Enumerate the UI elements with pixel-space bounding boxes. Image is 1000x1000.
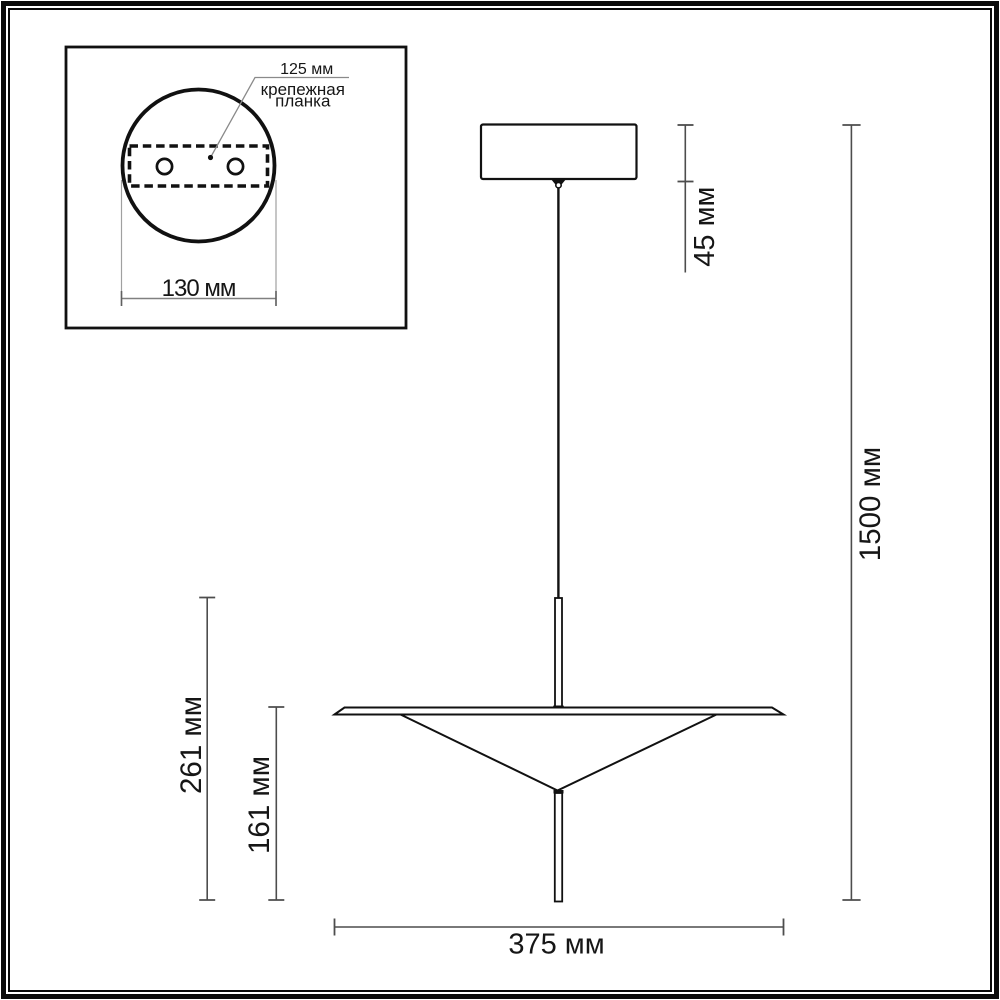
svg-text:130 мм: 130 мм [162, 275, 236, 302]
svg-text:161 мм: 161 мм [243, 756, 276, 854]
svg-text:45 мм: 45 мм [689, 186, 721, 266]
svg-text:1500 мм: 1500 мм [854, 447, 887, 561]
svg-text:375 мм: 375 мм [508, 929, 604, 961]
svg-text:планка: планка [275, 92, 331, 111]
svg-text:125 мм: 125 мм [280, 61, 333, 78]
svg-text:261 мм: 261 мм [175, 696, 208, 794]
